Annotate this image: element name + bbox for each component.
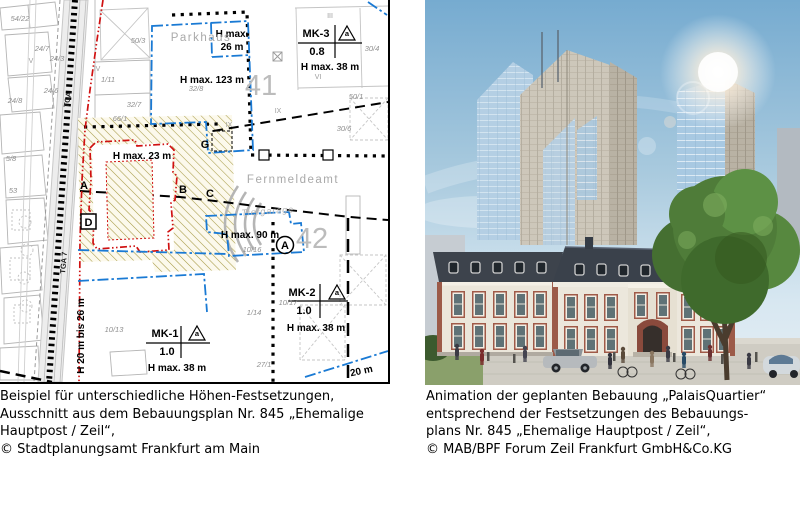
red-boundaries (79, 0, 177, 382)
map-label: 66/1 (113, 114, 128, 123)
palace-left-wing (433, 252, 563, 356)
map-label: MK-1 (152, 328, 179, 340)
map-label: 1.0 (159, 346, 174, 358)
map-label: 24/7 (34, 44, 50, 53)
caption-left-line1: Beispiel für unterschiedliche Höhen-Fest… (0, 388, 392, 406)
map-label: 50/3 (131, 36, 146, 45)
map-label: 24/3 (49, 54, 65, 63)
map-label: 0.8 (309, 46, 324, 58)
map-label: 24/8 (7, 96, 23, 105)
map-label: Parkhaus (171, 32, 232, 44)
map-label: 41 (245, 70, 277, 102)
map-label: H max. 38 m (148, 363, 206, 374)
map-label: 10/17 (279, 298, 299, 307)
zoning-map-svg: H max.26 mH max. 123 mH max. 23 mH max. … (0, 0, 388, 382)
caption-right: Animation der geplanten Bebauung „Palais… (426, 388, 800, 458)
map-label: H max. 38 m (301, 62, 359, 73)
map-label: Fernmeldeamt (247, 174, 339, 186)
map-label: 54/22 (11, 14, 31, 23)
map-label: TGA 7 (58, 252, 69, 275)
map-label: 1/11 (101, 75, 115, 84)
map-label: H max. 90 m (221, 230, 279, 241)
map-label: 42 (296, 223, 328, 255)
map-label: VI (315, 74, 322, 81)
map-label: G (201, 139, 210, 151)
map-label: D (85, 217, 93, 229)
map-label: MK-3 (303, 28, 330, 40)
map-label: V (29, 58, 34, 65)
caption-left-line2: Ausschnitt aus dem Bebauungsplan Nr. 845… (0, 406, 392, 424)
map-label: 32/8 (189, 84, 204, 93)
map-label: A (281, 240, 289, 252)
map-label: 30/4 (365, 44, 380, 53)
rendering-svg (425, 0, 800, 385)
map-label: 53 (9, 186, 18, 195)
caption-left-credit: © Stadtplanungsamt Frankfurt am Main (0, 441, 392, 459)
map-label: IX (226, 122, 233, 129)
map-label: III (327, 13, 333, 20)
map-label: 1/14 (247, 308, 262, 317)
map-label: IX (275, 108, 282, 115)
map-label: 10/13 (105, 325, 125, 334)
caption-right-credit: © MAB/BPF Forum Zeil Frankfurt GmbH&Co.K… (426, 441, 800, 459)
map-label: C (206, 188, 214, 200)
map-label: 30/6 (337, 124, 352, 133)
map-label: H max. 38 m (287, 323, 345, 334)
chimney (585, 237, 593, 249)
map-label: A (80, 180, 88, 192)
map-label: 20 m (349, 364, 374, 380)
map-label: 24/6 (43, 86, 59, 95)
map-label: B (179, 184, 187, 196)
map-label: H max. 23 m (113, 151, 171, 162)
map-label: 1.0 (296, 305, 311, 317)
caption-right-line3: plans Nr. 845 „Ehemalige Hauptpost / Zei… (426, 423, 800, 441)
caption-left: Beispiel für unterschiedliche Höhen-Fest… (0, 388, 392, 458)
map-label: 5/8 (6, 154, 17, 163)
caption-right-line2: entsprechend der Festsetzungen des Bebau… (426, 406, 800, 424)
caption-left-line3: Hauptpost / Zeil“, (0, 423, 392, 441)
map-label: IV (94, 66, 101, 73)
map-label: 10/16 (243, 245, 263, 254)
g-marker-box (212, 131, 232, 151)
map-label: 50/1 (349, 92, 364, 101)
page: H max.26 mH max. 123 mH max. 23 mH max. … (0, 0, 800, 524)
zoning-map-figure: H max.26 mH max. 123 mH max. 23 mH max. … (0, 0, 390, 384)
map-label: 32/7 (127, 100, 142, 109)
palaisquartier-rendering (425, 0, 800, 385)
map-label: 27/1 (256, 360, 272, 369)
map-label: H 20 m bis 26 m (76, 298, 87, 374)
caption-right-line1: Animation der geplanten Bebauung „Palais… (426, 388, 800, 406)
